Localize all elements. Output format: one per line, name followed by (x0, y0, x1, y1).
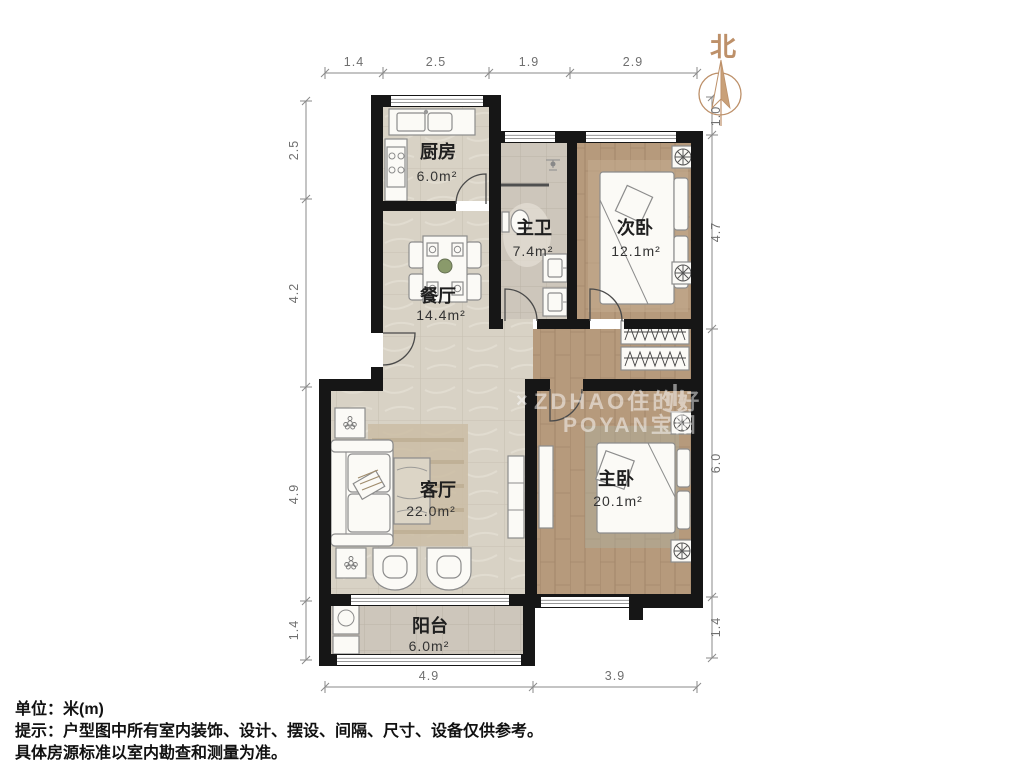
window-balcony (337, 655, 521, 665)
floor-plan-page: 厨房 6.0m² 主卫 7.4m² 次卧 12.1m² 餐厅 14.4m² 客厅… (0, 0, 1024, 768)
room-label-balcony: 阳台 (412, 615, 448, 636)
watermark-brand-2: POYAN宝阳 (563, 413, 699, 437)
room-area-dining: 14.4m² (416, 307, 466, 323)
dim-left-4: 1.4 (287, 620, 301, 640)
dim-right-3: 6.0 (709, 453, 723, 473)
dim-top-4: 2.9 (623, 55, 643, 69)
dim-right-4: 1.4 (709, 617, 723, 637)
compass-needle-right (721, 60, 730, 108)
tv-console (508, 456, 524, 538)
footer-unit-note: 单位：米(m) (15, 695, 104, 719)
window-kitchen (391, 96, 483, 106)
room-area-bedroom2: 12.1m² (611, 243, 661, 259)
dim-left-3: 4.9 (287, 484, 301, 504)
room-area-balcony: 6.0m² (409, 638, 450, 654)
room-area-master: 20.1m² (593, 493, 643, 509)
dimension-left: 2.5 4.2 4.9 1.4 (287, 97, 312, 664)
watermark-brand-1: ZDHAO住的好 (534, 389, 702, 414)
washing-machine (333, 602, 359, 634)
sofa (331, 440, 393, 546)
room-label-bath: 主卫 (516, 217, 552, 238)
dim-left-1: 2.5 (287, 140, 301, 160)
room-label-bedroom2: 次卧 (617, 217, 653, 238)
room-label-dining: 餐厅 (419, 285, 456, 306)
dim-top-2: 2.5 (426, 55, 446, 69)
room-label-kitchen: 厨房 (420, 141, 456, 162)
footer-disclaimer-1: 提示：户型图中所有室内装饰、设计、摆设、间隔、尺寸、设备仅供参考。 (15, 717, 543, 741)
room-label-living: 客厅 (420, 479, 456, 500)
room-area-living: 22.0m² (406, 503, 456, 519)
window-bedroom2 (586, 132, 676, 142)
dim-right-2: 4.7 (709, 222, 723, 242)
balcony-furniture (333, 602, 359, 654)
floor-plan: 厨房 6.0m² 主卫 7.4m² 次卧 12.1m² 餐厅 14.4m² 客厅… (0, 0, 1024, 768)
north-label: 北 (710, 32, 736, 62)
dimension-right: 1.0 4.7 6.0 1.4 (706, 93, 723, 662)
dimension-bottom: 4.9 3.9 (321, 669, 701, 693)
compass-needle-left (712, 60, 721, 108)
ac-vent-icon (675, 265, 691, 281)
room-label-master: 主卧 (598, 468, 634, 489)
dim-left-2: 4.2 (287, 283, 301, 303)
window-bath (505, 132, 555, 142)
watermark-separator: × (516, 390, 531, 412)
dim-bottom-2: 3.9 (605, 669, 625, 683)
master-dresser (539, 446, 553, 528)
dim-top-1: 1.4 (344, 55, 364, 69)
lounge-chair (427, 548, 471, 590)
dimension-top: 1.4 2.5 1.9 2.9 (321, 55, 701, 79)
window-master (541, 597, 629, 607)
dim-top-3: 1.9 (519, 55, 539, 69)
dim-bottom-1: 4.9 (419, 669, 439, 683)
ac-vent-icon (675, 149, 691, 165)
room-area-kitchen: 6.0m² (417, 168, 458, 184)
lounge-chair (373, 548, 417, 590)
plant-icon (438, 259, 452, 273)
footer-disclaimer-2: 具体房源标准以室内勘查和测量为准。 (15, 739, 287, 763)
window-living-balcony (351, 595, 509, 605)
ac-vent-icon (674, 543, 690, 559)
room-area-bath: 7.4m² (513, 243, 554, 259)
